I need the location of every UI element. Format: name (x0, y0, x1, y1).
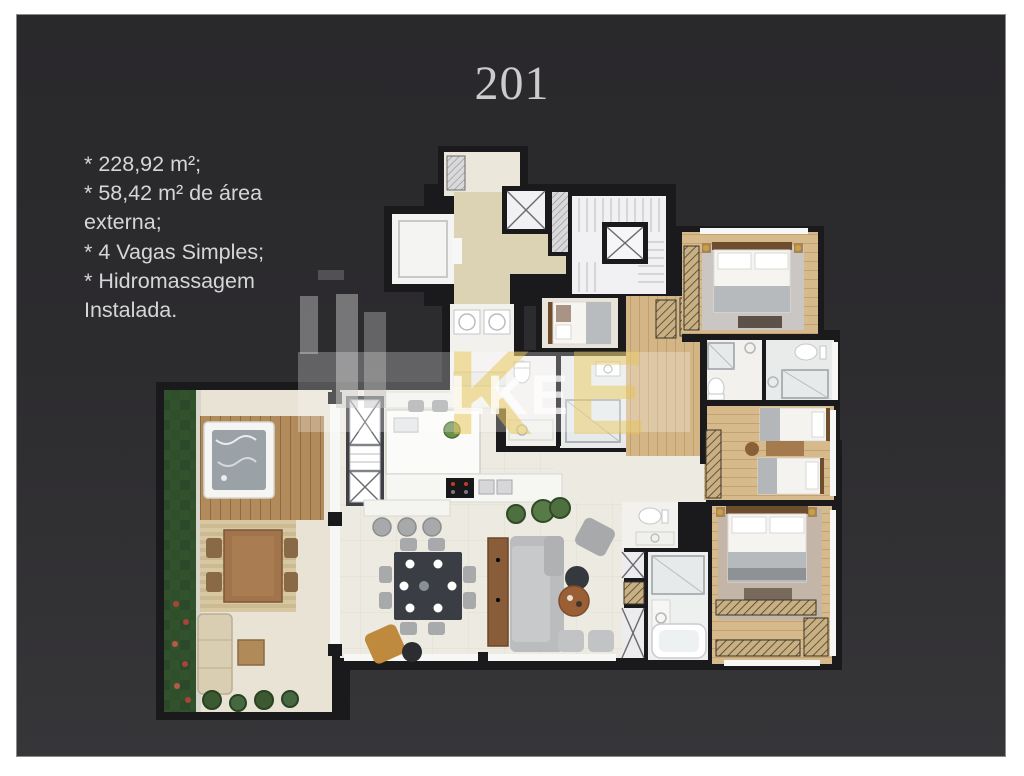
bench (744, 588, 792, 600)
ottoman (558, 630, 584, 652)
closet (716, 640, 800, 656)
elevator-left (392, 214, 462, 284)
desk (766, 441, 804, 456)
chair (284, 572, 298, 592)
single-bed-2 (758, 458, 824, 494)
closet (804, 618, 828, 656)
bar-counter (364, 500, 450, 516)
master-bedroom (712, 506, 836, 666)
watermark-letter-e: E (566, 326, 646, 460)
blanket (714, 286, 790, 312)
grass-strip (164, 390, 198, 712)
chair (284, 538, 298, 558)
page: K E LKE 201 * 228,92 m²; * 58,42 m² de á… (0, 0, 1024, 776)
bar-stool (423, 518, 441, 536)
bedroom-2 (700, 400, 836, 500)
chair (206, 572, 222, 592)
chair (206, 538, 222, 558)
stairwell (572, 196, 666, 294)
plant (507, 505, 525, 523)
wardrobe (684, 246, 699, 330)
spec-line: * 58,42 m² de área externa; (84, 179, 298, 237)
headboard (712, 242, 792, 250)
watermark-bar (300, 296, 318, 354)
side-table (238, 640, 264, 665)
cooktop (446, 478, 474, 498)
floor-plan-svg: K E LKE (0, 0, 1024, 776)
desk-chair (745, 442, 759, 456)
page-title: 201 (0, 56, 1024, 111)
watermark-text: LKE (450, 363, 571, 426)
wardrobe (706, 430, 721, 498)
palm-plant (550, 498, 570, 518)
tv-sideboard (488, 538, 508, 646)
closet (716, 600, 816, 615)
spec-list: * 228,92 m²; * 58,42 m² de área externa;… (84, 150, 298, 325)
bar-stool (373, 518, 391, 536)
bench (738, 316, 782, 328)
pillow (556, 305, 571, 322)
round-table (559, 586, 589, 616)
spec-line: * Hidromassagem Instalada. (84, 267, 298, 325)
terrace (164, 390, 332, 712)
ottoman (588, 630, 614, 652)
spec-line: * 4 Vagas Simples; (84, 238, 298, 267)
bar-stool (398, 518, 416, 536)
side-table (402, 642, 422, 662)
hot-tub (204, 422, 274, 498)
bedroom-1 (682, 228, 818, 336)
closet (656, 300, 676, 338)
single-bed-1 (760, 408, 830, 441)
spec-line: * 228,92 m²; (84, 150, 298, 179)
pergola-dining (200, 520, 298, 612)
headboard (726, 506, 808, 514)
